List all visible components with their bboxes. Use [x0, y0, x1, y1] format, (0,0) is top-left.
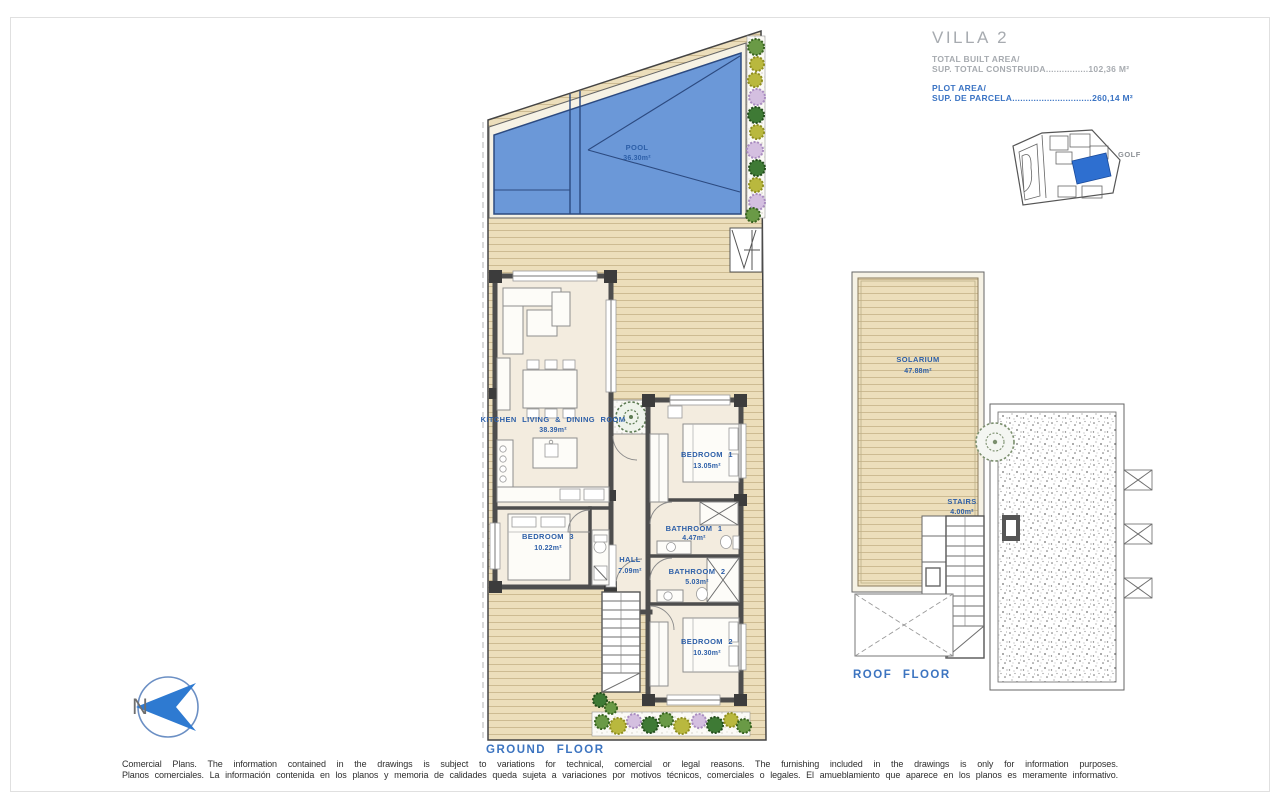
- roof-void: [855, 594, 953, 656]
- pool-area: 36.30m²: [623, 155, 651, 162]
- wc-fixtures: [592, 530, 609, 585]
- pool-label: POOL: [626, 143, 649, 152]
- bathroom2-label: BATHROOM 2: [669, 567, 726, 576]
- plot-area-value: SUP. DE PARCELA.........................…: [932, 93, 1232, 103]
- stairs-label: STAIRS: [947, 497, 976, 506]
- side-garden-strip: [746, 36, 765, 222]
- bedroom1-label: BEDROOM 1: [681, 450, 733, 459]
- bedroom1-area: 13.05m²: [693, 463, 721, 470]
- bedroom2-label: BEDROOM 2: [681, 637, 733, 646]
- disclaimer-line-es: Planos comerciales. La información conte…: [122, 770, 1118, 781]
- bathroom2-area: 5.03m²: [685, 579, 709, 586]
- deck-equipment-box: [730, 228, 762, 272]
- golf-label: GOLF: [1118, 150, 1141, 159]
- ground-floor-caption: GROUND FLOOR: [486, 744, 605, 756]
- villa-title: VILLA 2: [932, 28, 1232, 48]
- roof-floor-plan: SOLARIUM 47.88m² STAIRS 4.00m²: [852, 272, 1152, 690]
- disclaimer-line-en: Comercial Plans. The information contain…: [122, 759, 1118, 770]
- roof-floor-caption: ROOF FLOOR: [853, 669, 951, 681]
- bathroom1-area: 4.47m²: [682, 535, 706, 542]
- bedroom3-label: BEDROOM 3: [522, 532, 574, 541]
- north-arrow: N: [132, 677, 198, 737]
- solarium-label: SOLARIUM: [896, 355, 939, 364]
- solarium-area: 47.88m²: [904, 368, 932, 375]
- bathroom1-label: BATHROOM 1: [666, 524, 723, 533]
- hall-area: 7.09m²: [618, 568, 642, 575]
- exterior-stairs: [602, 592, 640, 692]
- floor-plan-drawing: POOL 36.30m²: [0, 0, 1280, 800]
- stairs-area: 4.00m²: [950, 509, 974, 516]
- bedroom3-area: 10.22m²: [534, 545, 562, 552]
- pool: POOL 36.30m²: [489, 43, 746, 218]
- kitchen-area: 38.39m²: [539, 427, 567, 434]
- built-area-label: TOTAL BUILT AREA/: [932, 54, 1232, 64]
- hall-label: HALL: [619, 555, 641, 564]
- title-block: VILLA 2 TOTAL BUILT AREA/ SUP. TOTAL CON…: [932, 28, 1232, 103]
- roof-surface: [976, 404, 1152, 690]
- site-plan-minimap: GOLF: [1013, 130, 1141, 205]
- ground-floor-plan: POOL 36.30m²: [481, 31, 766, 756]
- north-letter: N: [132, 694, 148, 719]
- built-area-value: SUP. TOTAL CONSTRUIDA................102…: [932, 64, 1232, 74]
- plot-area-label: PLOT AREA/: [932, 83, 1232, 93]
- bedroom2-area: 10.30m²: [693, 650, 721, 657]
- kitchen-label: KITCHEN LIVING & DINING ROOM: [481, 415, 626, 424]
- disclaimer: Comercial Plans. The information contain…: [122, 759, 1118, 780]
